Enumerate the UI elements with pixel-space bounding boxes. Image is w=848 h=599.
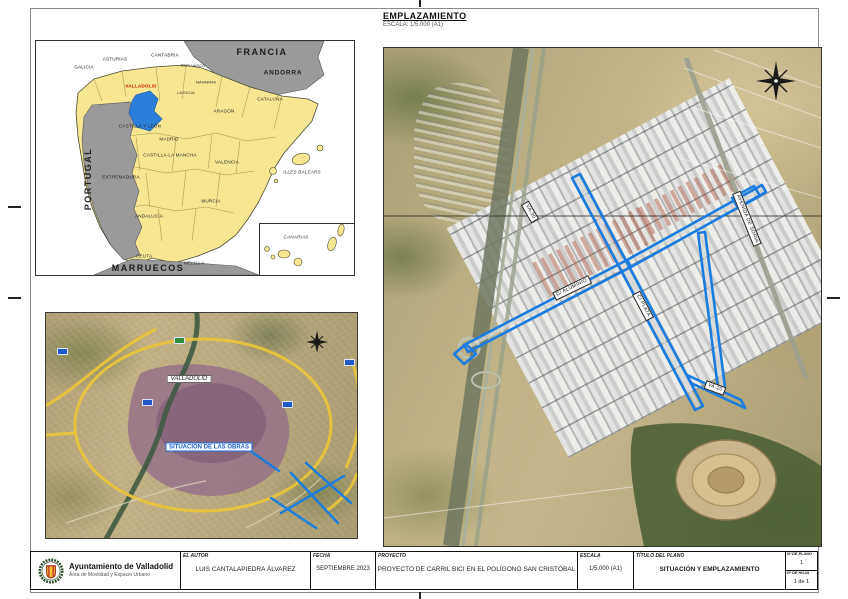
valladolid-crest-logo xyxy=(38,558,64,584)
country-label: PORTUGAL xyxy=(83,148,93,211)
region-label: PAÍS VASCO xyxy=(181,64,205,68)
region-label: CASTILLA-LA MANCHA xyxy=(143,153,196,158)
author-value: LUIS CANTALAPIEDRA ÁLVAREZ xyxy=(181,566,310,573)
region-label: ARAGÓN xyxy=(213,109,234,114)
obras-highlight-grid xyxy=(246,448,351,528)
road-shield-icon xyxy=(57,348,68,355)
plan-number-label: Nº DE PLANO xyxy=(787,552,812,556)
region-label: EXTREMADURA xyxy=(102,175,139,180)
plan-title-label: TÍTULO DEL PLANO xyxy=(636,553,684,559)
sheet-number-label: Nº DE HOJA xyxy=(787,571,809,575)
region-label: CASTILLA Y LEÓN xyxy=(119,124,161,129)
region-label: LA RIOJA xyxy=(177,91,194,95)
author-label: EL AUTOR xyxy=(183,553,208,559)
region-label: VALENCIA xyxy=(215,160,239,165)
date-value: SEPTIEMBRE 2023 xyxy=(311,566,375,572)
region-label: CANTABRIA xyxy=(151,53,179,58)
region-label: MELILLA xyxy=(184,261,204,266)
sheet-number-row: Nº DE HOJA 1 de 1 xyxy=(786,571,817,589)
scale-value: 1/5.000 (A1) xyxy=(578,566,633,572)
numbers-cell: Nº DE PLANO 1 Nº DE HOJA 1 de 1 xyxy=(786,552,817,589)
region-label: CEUTA xyxy=(136,254,152,259)
plan-title-value: SITUACIÓN Y EMPLAZAMIENTO xyxy=(634,566,785,573)
title-block: Ayuntamiento de Valladolid Área de Movil… xyxy=(30,551,818,590)
country-label: FRANCIA xyxy=(237,47,288,57)
canary-islands-inset-border xyxy=(259,223,354,275)
reg-mark xyxy=(8,297,21,299)
region-label: GALICIA xyxy=(74,65,94,70)
project-value: PROYECTO DE CARRIL BICI EN EL POLÍGONO S… xyxy=(376,566,577,573)
valladolid-province-label: VALLADOLID xyxy=(125,84,156,89)
city-compass-icon xyxy=(306,331,328,353)
city-name-label: VALLADOLID xyxy=(167,375,212,383)
plan-title-cell: TÍTULO DEL PLANO SITUACIÓN Y EMPLAZAMIEN… xyxy=(634,552,786,589)
scale-label: ESCALA xyxy=(580,553,601,559)
spain-overview-map: FRANCIA ANDORRA PORTUGAL MARRUECOS GALIC… xyxy=(35,40,355,276)
reg-mark xyxy=(419,0,421,7)
reg-mark xyxy=(827,297,840,299)
plan-sheet: EMPLAZAMIENTO ESCALA: 1/5.000 (A1) xyxy=(0,0,848,599)
country-label: ANDORRA xyxy=(264,70,303,77)
author-cell: EL AUTOR LUIS CANTALAPIEDRA ÁLVAREZ xyxy=(181,552,311,589)
region-label: NAVARRA xyxy=(196,80,216,85)
reg-mark xyxy=(8,206,21,208)
road-shield-icon xyxy=(142,399,153,406)
organization-text: Ayuntamiento de Valladolid Área de Movil… xyxy=(69,563,173,578)
site-map-drawing xyxy=(384,48,821,546)
region-label: MADRID xyxy=(159,137,178,142)
organization-dept: Área de Movilidad y Espacio Urbano xyxy=(69,572,173,578)
site-aerial-map: VA-30 C/ ALUMINIO C/ PLATA AVENIDA DE SO… xyxy=(383,47,822,547)
emplazamiento-header: EMPLAZAMIENTO ESCALA: 1/5.000 (A1) xyxy=(383,11,467,29)
region-label: CATALUÑA xyxy=(257,97,282,102)
date-cell: FECHA SEPTIEMBRE 2023 xyxy=(311,552,376,589)
sheet-number-value: 1 de 1 xyxy=(786,579,817,585)
project-cell: PROYECTO PROYECTO DE CARRIL BICI EN EL P… xyxy=(376,552,578,589)
region-label: CANARIAS xyxy=(283,235,308,240)
quarry-feature xyxy=(676,440,776,520)
region-label: ANDALUCÍA xyxy=(135,214,163,219)
region-label: MURCIA xyxy=(201,199,220,204)
emplazamiento-title: EMPLAZAMIENTO xyxy=(383,11,467,21)
country-label: MARRUECOS xyxy=(112,263,185,273)
organization-name: Ayuntamiento de Valladolid xyxy=(69,563,173,572)
region-label: ILLES BALEARS xyxy=(283,170,321,175)
region-label: ASTURIAS xyxy=(103,57,128,62)
plan-number-row: Nº DE PLANO 1 xyxy=(786,552,817,571)
road-shield-icon xyxy=(282,401,293,408)
emplazamiento-scale: ESCALA: 1/5.000 (A1) xyxy=(383,22,467,29)
reg-mark xyxy=(419,592,421,599)
date-label: FECHA xyxy=(313,553,330,559)
plan-number-value: 1 xyxy=(786,560,817,566)
city-aerial-map: VALLADOLID SITUACIÓN DE LAS OBRAS xyxy=(45,312,358,539)
scale-cell: ESCALA 1/5.000 (A1) xyxy=(578,552,634,589)
road-shield-icon xyxy=(174,337,185,344)
road-shield-icon xyxy=(344,359,355,366)
city-map-drawing xyxy=(46,313,357,538)
project-label: PROYECTO xyxy=(378,553,406,559)
organization-cell: Ayuntamiento de Valladolid Área de Movil… xyxy=(31,552,181,589)
obras-callout-label: SITUACIÓN DE LAS OBRAS xyxy=(165,443,252,452)
